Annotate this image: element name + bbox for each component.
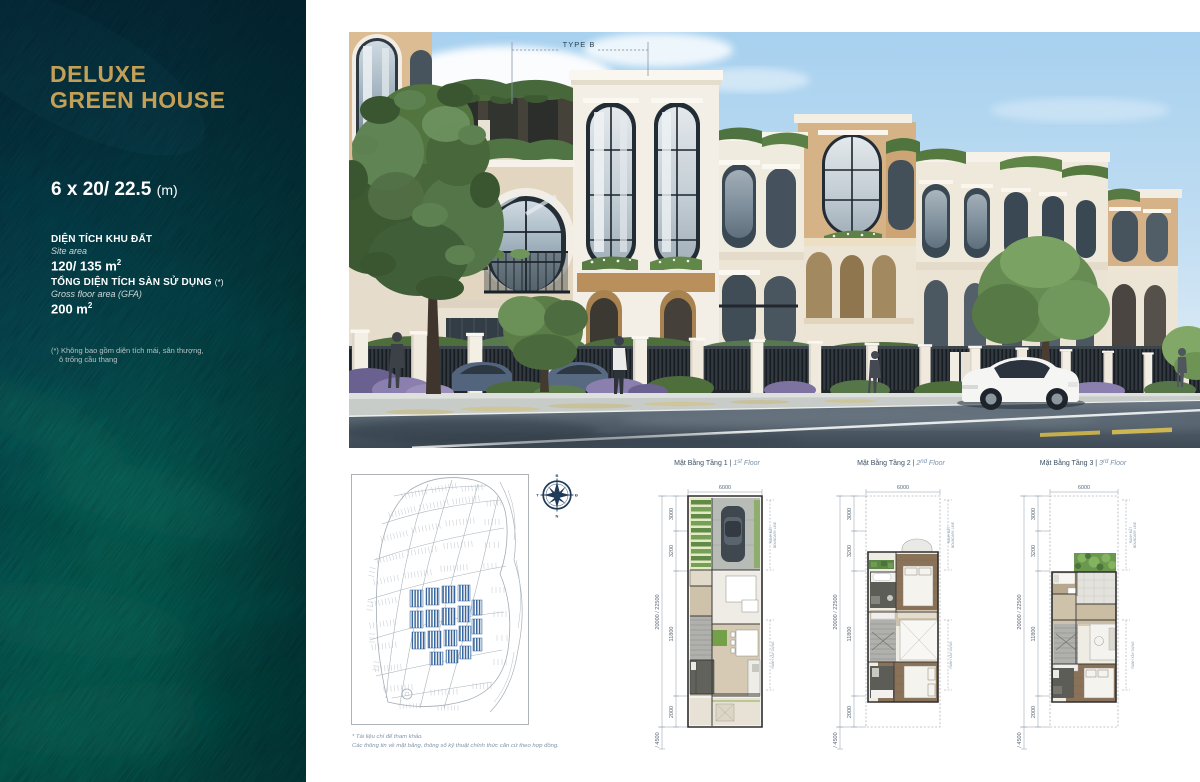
svg-text:T: T [536, 493, 539, 498]
svg-text:* Tài liệu chỉ để tham khảo.: * Tài liệu chỉ để tham khảo. [352, 733, 423, 740]
svg-text:BOUNDARY LINE: BOUNDARY LINE [951, 522, 955, 548]
svg-text:/ 4500: / 4500 [1017, 732, 1023, 747]
svg-text:Mặt Bằng Tầng 3 | 3rd Floor: Mặt Bằng Tầng 3 | 3rd Floor [1040, 458, 1127, 467]
svg-text:Mặt Bằng Tầng 1 | 1st Floor: Mặt Bằng Tầng 1 | 1st Floor [674, 458, 760, 467]
svg-text:20000 / 22500: 20000 / 22500 [833, 594, 839, 629]
svg-text:3200: 3200 [847, 545, 853, 557]
svg-text:6000: 6000 [897, 485, 909, 491]
svg-text:2000: 2000 [847, 706, 853, 718]
svg-text:Đ: Đ [575, 493, 578, 498]
svg-text:/ 4500: / 4500 [655, 732, 661, 747]
svg-text:11800: 11800 [1031, 627, 1037, 642]
svg-text:RANH XÂY DỰNG: RANH XÂY DỰNG [1131, 641, 1135, 668]
svg-text:3000: 3000 [669, 508, 675, 520]
svg-text:BOUNDARY LINE: BOUNDARY LINE [1133, 522, 1137, 548]
svg-text:Các thông tin về mặt bằng, thô: Các thông tin về mặt bằng, thông số kỹ t… [352, 742, 559, 749]
svg-text:6000: 6000 [719, 485, 731, 491]
svg-text:N: N [556, 514, 559, 519]
svg-text:B: B [556, 473, 559, 478]
svg-text:/ 4500: / 4500 [833, 732, 839, 747]
svg-text:11800: 11800 [669, 627, 675, 642]
svg-text:BOUNDARY LINE: BOUNDARY LINE [773, 522, 777, 548]
svg-text:3200: 3200 [669, 545, 675, 557]
svg-text:20000 / 22500: 20000 / 22500 [1017, 594, 1023, 629]
svg-text:2000: 2000 [669, 706, 675, 718]
svg-text:11800: 11800 [847, 627, 853, 642]
svg-text:TYPE B: TYPE B [563, 40, 596, 49]
svg-text:2000: 2000 [1031, 706, 1037, 718]
svg-text:20000 / 22500: 20000 / 22500 [655, 594, 661, 629]
svg-text:Mặt Bằng Tầng 2 | 2nd Floor: Mặt Bằng Tầng 2 | 2nd Floor [857, 458, 945, 467]
svg-text:3000: 3000 [1031, 508, 1037, 520]
svg-text:6000: 6000 [1078, 485, 1090, 491]
svg-text:3200: 3200 [1031, 545, 1037, 557]
svg-text:RANH XÂY DỰNG: RANH XÂY DỰNG [949, 641, 953, 668]
svg-text:3000: 3000 [847, 508, 853, 520]
svg-text:RANH XÂY DỰNG: RANH XÂY DỰNG [771, 641, 775, 668]
